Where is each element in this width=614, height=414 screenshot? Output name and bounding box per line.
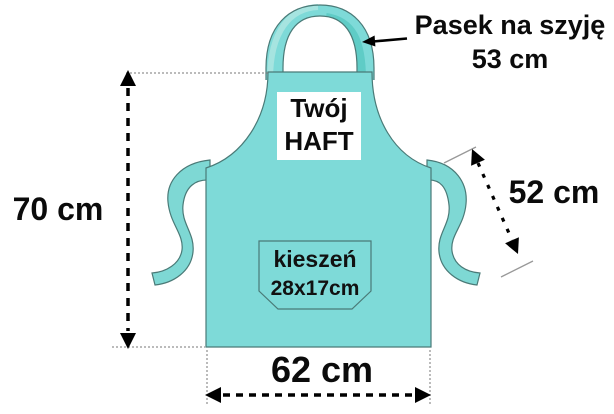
apron-size-diagram: Pasek na szyję 53 cm 70 cm 52 cm 62 cm T… xyxy=(0,0,614,414)
neck-strap-value: 53 cm xyxy=(408,42,612,76)
pocket-size: 28x17cm xyxy=(258,277,372,301)
tie-dimension-label: 52 cm xyxy=(498,174,610,211)
width-dimension-label: 62 cm xyxy=(240,349,404,391)
tie-arrow-tick-bottom xyxy=(501,261,533,277)
height-arrow-head-top xyxy=(120,70,136,86)
embroidery-line1: Twój xyxy=(277,92,361,125)
left-tie xyxy=(152,160,210,285)
neck-strap-label: Pasek na szyję 53 cm xyxy=(408,8,612,76)
height-dimension-label: 70 cm xyxy=(2,191,114,228)
embroidery-line2: HAFT xyxy=(277,125,361,158)
neck-strap-label-text: Pasek na szyję xyxy=(408,8,612,42)
width-arrow-head-right xyxy=(415,387,431,403)
pocket-label: kieszeń 28x17cm xyxy=(258,246,372,301)
right-tie xyxy=(427,160,480,285)
neck-arrow-line xyxy=(373,39,407,42)
embroidery-label-box: Twój HAFT xyxy=(277,92,361,160)
tie-arrow-head-bottom xyxy=(505,237,519,254)
tie-arrow-tick-top xyxy=(444,147,476,163)
pocket-name: kieszeń xyxy=(258,246,372,272)
width-arrow-head-left xyxy=(205,387,221,403)
